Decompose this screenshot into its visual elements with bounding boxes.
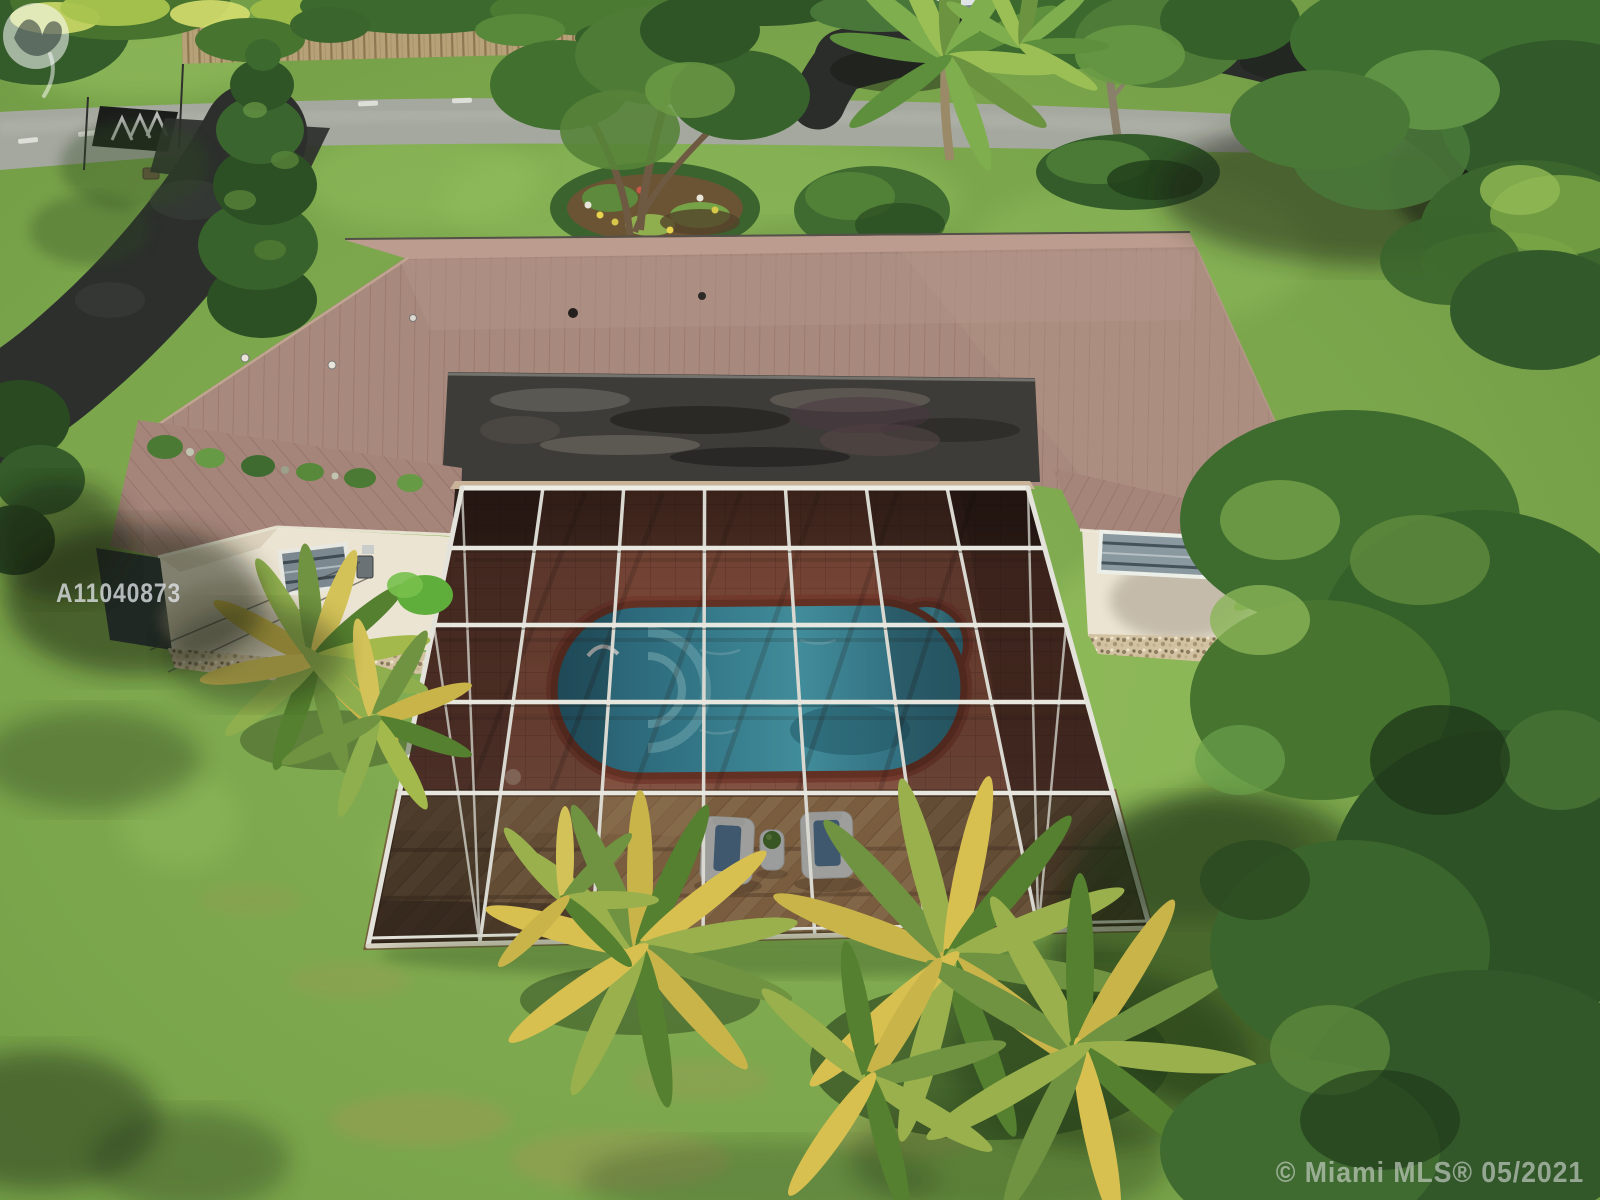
miami-mls-logo-icon [0,0,72,104]
mls-listing-id: A11040873 [56,578,181,609]
mls-listing-id-watermark: A11040873 [56,578,181,609]
copyright-watermark: © Miami MLS® 05/2021 [1276,1157,1584,1190]
electric-panel [357,556,373,578]
flat-roof-strip [442,372,1040,482]
aerial-photo: A11040873 © Miami MLS® 05/2021 [0,0,1600,1200]
photo-canvas [0,0,1600,1200]
meter-box [362,545,374,554]
